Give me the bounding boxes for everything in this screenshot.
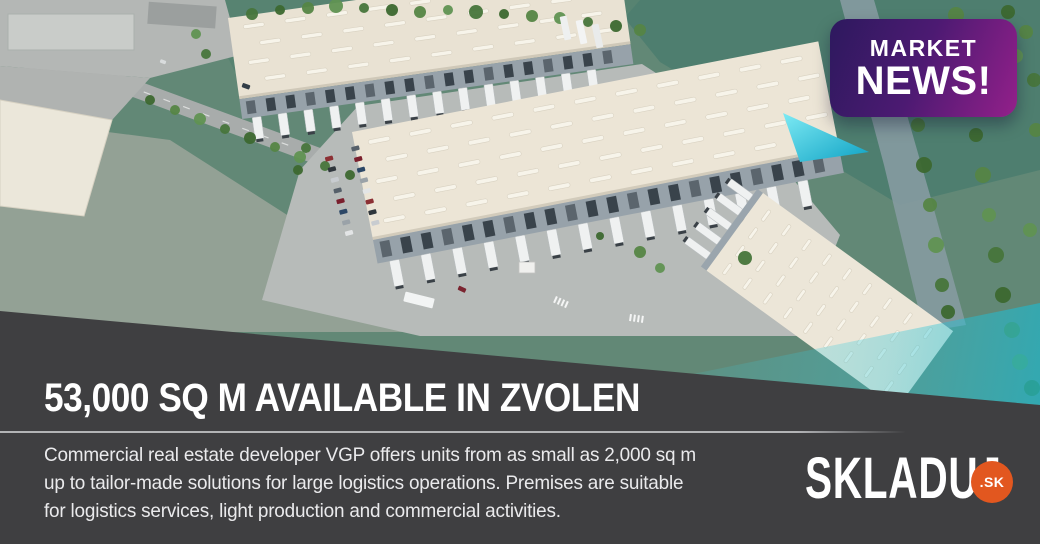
tree <box>935 278 949 292</box>
dock-door <box>404 78 415 92</box>
dock-door <box>602 50 613 64</box>
tree <box>194 113 206 125</box>
tree <box>923 198 937 212</box>
dock-door <box>305 92 316 106</box>
tree <box>928 237 944 253</box>
tree <box>301 143 311 153</box>
badge-line1: MARKET <box>870 36 977 61</box>
dock-door <box>582 53 593 67</box>
dock-door <box>424 75 435 89</box>
tree <box>170 105 180 115</box>
tree <box>911 118 925 132</box>
body-line: Commercial real estate developer VGP off… <box>44 441 696 469</box>
tree <box>414 6 426 18</box>
tree <box>201 49 211 59</box>
tree <box>1019 25 1033 39</box>
tree <box>596 232 604 240</box>
tree <box>293 165 303 175</box>
badge-line2: NEWS! <box>856 61 992 101</box>
tree <box>270 142 280 152</box>
tree <box>634 24 646 36</box>
gray-building <box>8 14 134 50</box>
dock-door <box>266 97 277 111</box>
body-line: for logistics services, light production… <box>44 497 696 525</box>
dock-door <box>563 56 574 70</box>
dock-door <box>483 67 494 81</box>
tree <box>738 251 752 265</box>
dock-door <box>543 58 554 72</box>
tree <box>526 10 538 22</box>
tree <box>655 263 665 273</box>
news-banner: MARKET NEWS! 53,000 SQ M AVAILABLE IN ZV… <box>0 0 1040 544</box>
tree <box>916 157 932 173</box>
tree <box>988 247 1004 263</box>
tree <box>302 2 314 14</box>
tree <box>995 287 1011 303</box>
dock-door <box>444 72 455 86</box>
tree <box>345 170 355 180</box>
tree <box>969 128 983 142</box>
tree <box>982 208 996 222</box>
dock-door <box>503 64 514 78</box>
tree <box>246 8 258 20</box>
dock-door <box>285 95 296 109</box>
logo-sk-badge: .SK <box>971 461 1013 503</box>
tree <box>941 305 955 319</box>
market-news-badge: MARKET NEWS! <box>830 19 1017 117</box>
tree <box>275 5 285 15</box>
tree <box>220 124 230 134</box>
tree <box>1001 5 1015 19</box>
headline: 53,000 SQ M AVAILABLE IN ZVOLEN <box>44 376 640 421</box>
tree <box>610 20 622 32</box>
tree <box>469 5 483 19</box>
dock-door <box>523 61 534 75</box>
tree <box>244 132 256 144</box>
dock-door <box>246 100 257 114</box>
dock-door <box>464 69 475 83</box>
body-text: Commercial real estate developer VGP off… <box>44 441 696 525</box>
tree <box>443 5 453 15</box>
tree <box>975 167 991 183</box>
tree <box>145 95 155 105</box>
tree <box>359 3 369 13</box>
tree <box>191 29 201 39</box>
tree <box>1023 223 1037 237</box>
skladuj-logo: SKLADUJ .SK <box>805 452 1020 508</box>
tree <box>499 9 509 19</box>
divider-line <box>0 431 906 433</box>
dock-door <box>384 81 395 95</box>
tree <box>294 151 306 163</box>
dock-door <box>325 89 336 103</box>
dock-door <box>345 86 356 100</box>
body-line: up to tailor-made solutions for large lo… <box>44 469 696 497</box>
tree <box>386 4 398 16</box>
tree <box>634 246 646 258</box>
dock-door <box>365 83 376 97</box>
tree <box>583 17 593 27</box>
gatehouse <box>519 262 535 273</box>
